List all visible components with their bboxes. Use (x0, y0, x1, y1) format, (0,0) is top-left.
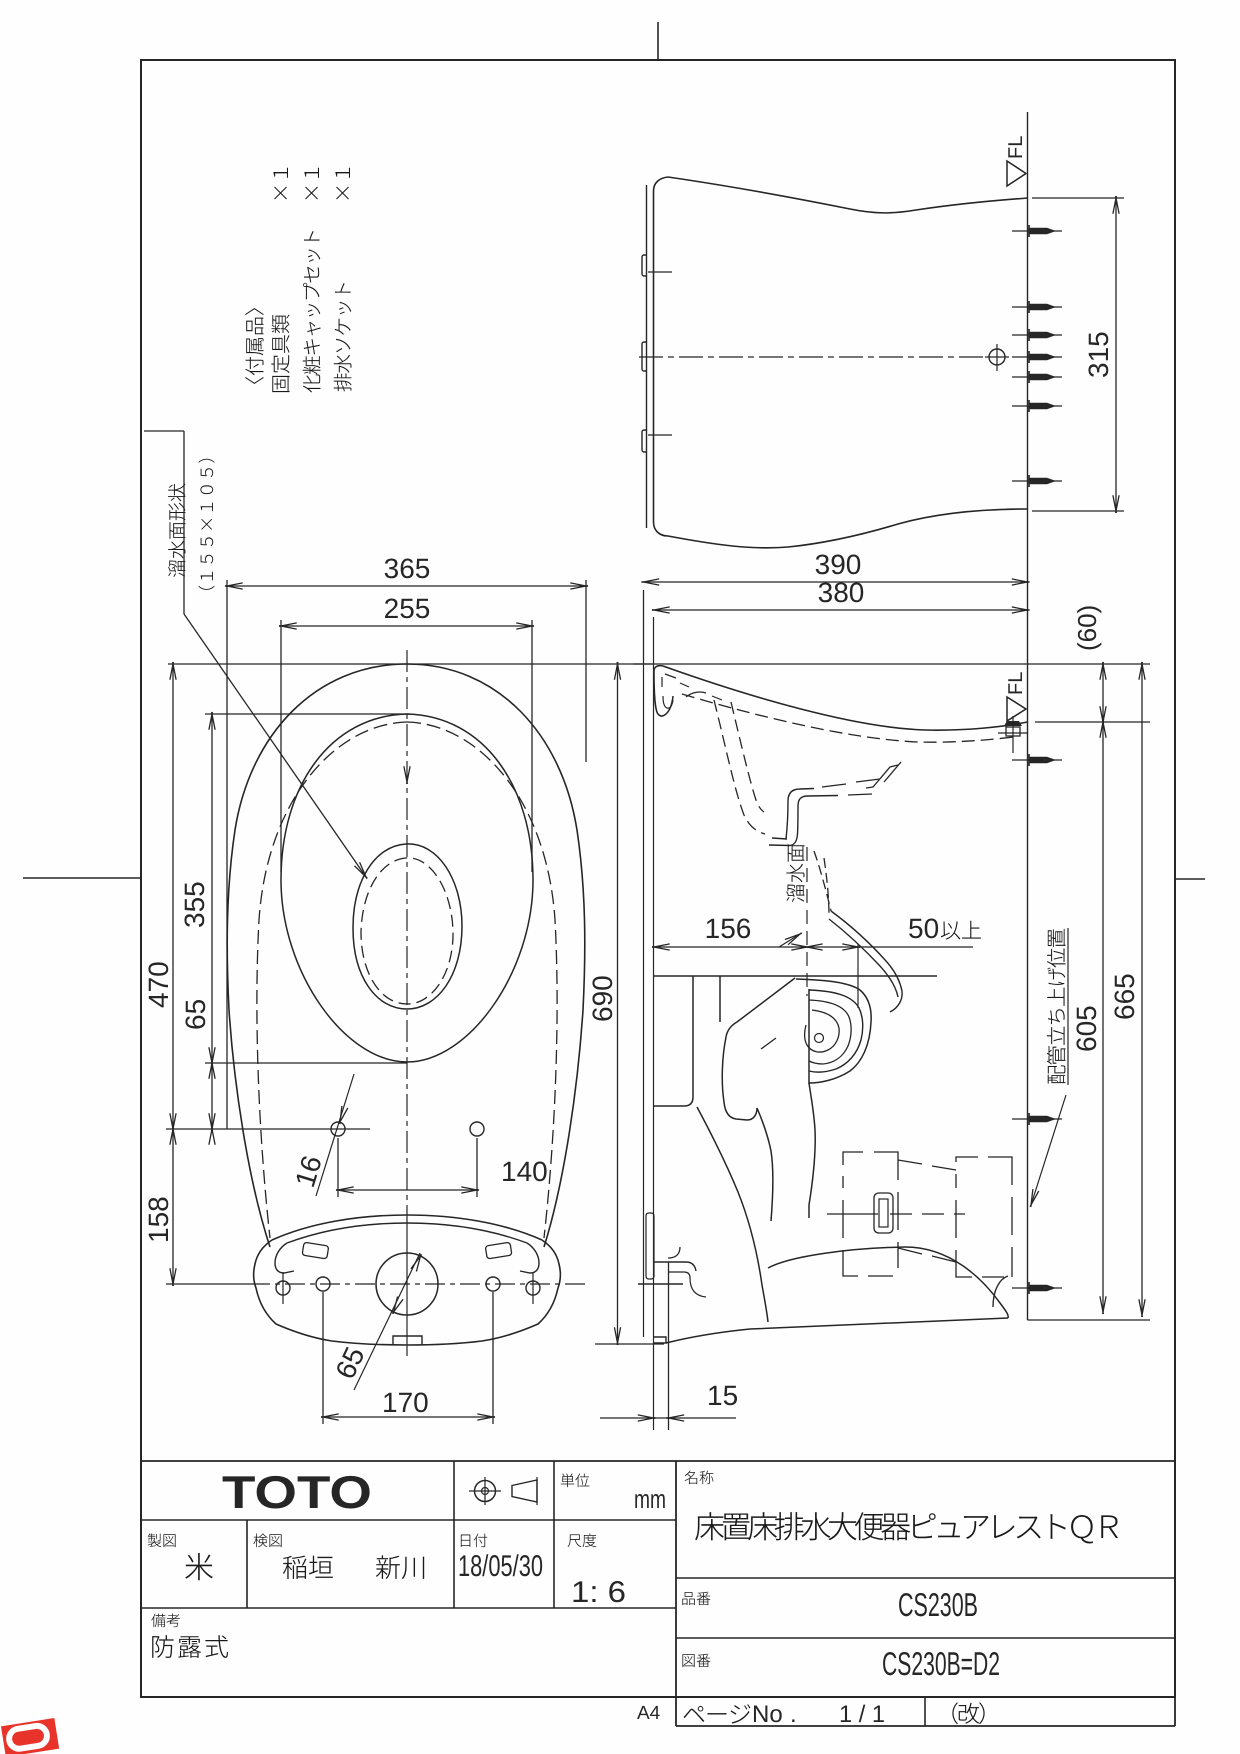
svg-text:CS230B=D2: CS230B=D2 (882, 1645, 1000, 1682)
svg-text:315: 315 (1083, 331, 1114, 378)
svg-text:FL: FL (1005, 136, 1027, 159)
svg-text:605: 605 (1071, 1005, 1102, 1052)
svg-text:15: 15 (707, 1380, 738, 1411)
svg-text:380: 380 (818, 577, 865, 608)
svg-text:(60): (60) (1072, 605, 1102, 651)
svg-text:390: 390 (815, 549, 862, 580)
svg-text:65: 65 (180, 999, 211, 1030)
svg-text:CS230B: CS230B (898, 1586, 978, 1623)
svg-text:170: 170 (382, 1387, 429, 1418)
svg-text:365: 365 (384, 553, 431, 584)
svg-text:1 / 1: 1 / 1 (839, 1701, 885, 1728)
svg-text:665: 665 (1109, 973, 1140, 1020)
svg-text:TOTO: TOTO (222, 1466, 372, 1518)
svg-text:140: 140 (501, 1156, 548, 1187)
svg-text:355: 355 (179, 881, 210, 928)
svg-text:470: 470 (143, 961, 174, 1008)
svg-text:FL: FL (1005, 672, 1027, 695)
svg-text:1: 6: 1: 6 (571, 1576, 626, 1609)
svg-text:255: 255 (384, 593, 431, 624)
svg-text:158: 158 (143, 1196, 174, 1243)
svg-text:A4: A4 (637, 1703, 661, 1724)
svg-text:690: 690 (587, 975, 618, 1022)
svg-text:18/05/30: 18/05/30 (458, 1550, 543, 1583)
svg-text:50: 50 (908, 913, 939, 944)
svg-text:No: No (752, 1701, 783, 1728)
svg-text:156: 156 (705, 913, 752, 944)
svg-text:mm: mm (634, 1484, 666, 1514)
svg-text:.: . (790, 1701, 797, 1728)
